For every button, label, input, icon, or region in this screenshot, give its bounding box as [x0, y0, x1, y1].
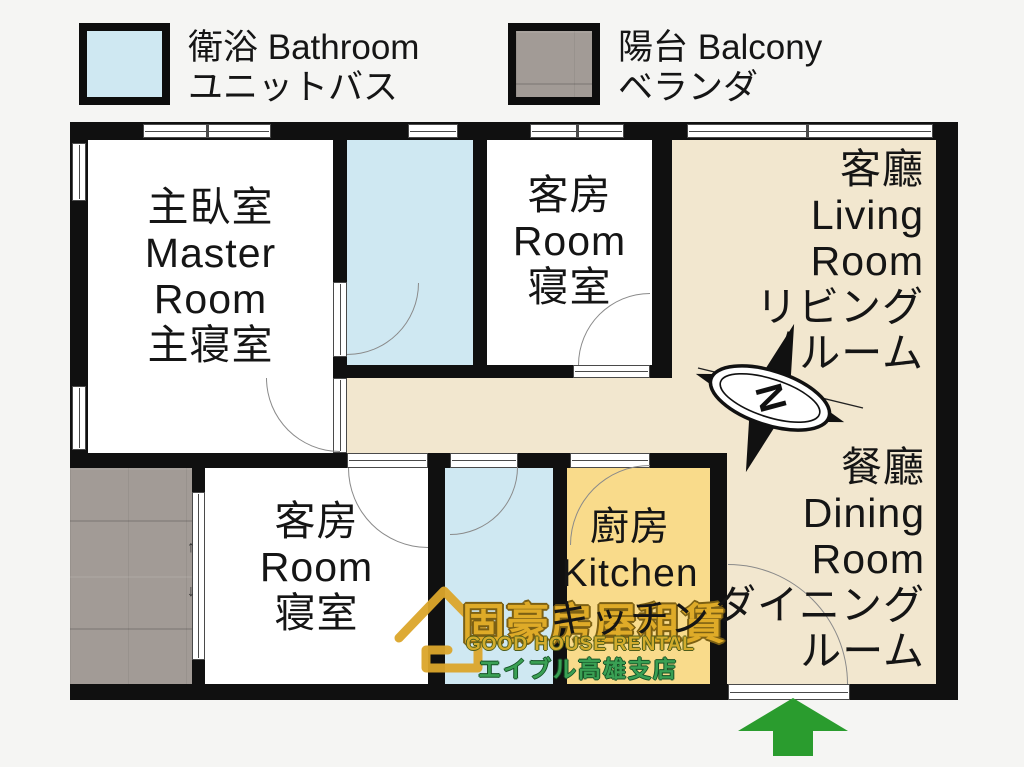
label-line: Room	[487, 218, 652, 264]
legend-balcony-swatch	[508, 23, 600, 105]
door-opening-bathroom-bottom	[450, 453, 518, 468]
label-master-bedroom: 主臥室 Master Room 主寝室	[88, 184, 333, 368]
label-line: Room	[672, 238, 924, 284]
wall-master-bath	[333, 134, 347, 282]
label-line: Kitchen	[540, 551, 720, 597]
wall-outer-right	[936, 122, 958, 700]
wall-guest-living	[652, 134, 672, 378]
door-opening-guest-top	[573, 365, 650, 378]
label-line: 客廳	[672, 146, 924, 192]
label-line: 主臥室	[88, 184, 333, 230]
legend-balcony-text: 陽台 Balcony	[618, 28, 822, 68]
wall-hall-top-left	[333, 365, 573, 378]
entrance-arrow-icon	[738, 698, 848, 756]
wall-slider-stub-bottom	[192, 660, 205, 684]
label-line: 寝室	[205, 590, 428, 636]
slider-arrow-up-icon: ↑	[187, 540, 195, 556]
legend-bathroom-swatch	[79, 23, 170, 105]
window-master-left-upper	[72, 143, 86, 201]
label-line: 主寝室	[88, 322, 333, 368]
legend-bathroom-text-jp: ユニットバス	[188, 68, 419, 108]
window-living-top	[687, 124, 933, 138]
floor-plan-page: 衛浴 Bathroom ユニットバス 陽台 Balcony ベランダ	[0, 0, 1024, 767]
balcony	[70, 468, 192, 684]
label-line: 寝室	[487, 264, 652, 310]
label-line: Room	[88, 276, 333, 322]
label-line: 客房	[487, 172, 652, 218]
window-master-top	[143, 124, 271, 138]
label-kitchen: 廚房 Kitchen キッチン	[540, 505, 720, 643]
label-line: キッチン	[540, 597, 720, 643]
wall-slider-stub-top	[192, 468, 205, 492]
sliding-door-balcony	[192, 492, 205, 660]
wall-hall-bottom-left	[70, 453, 347, 468]
legend-bathroom-label: 衛浴 Bathroom ユニットバス	[188, 28, 419, 108]
window-bathroom-top	[408, 124, 458, 138]
window-guest-top	[530, 124, 624, 138]
legend-balcony-label: 陽台 Balcony ベランダ	[618, 28, 822, 108]
label-line: 客房	[205, 498, 428, 544]
slider-arrow-down-icon: ↓	[187, 584, 195, 600]
legend-bathroom-text: 衛浴 Bathroom	[188, 28, 419, 68]
label-line: 廚房	[540, 505, 720, 551]
wall-bath-guest	[473, 134, 487, 378]
label-line: Master	[88, 230, 333, 276]
label-guest-room-bottom: 客房 Room 寝室	[205, 498, 428, 636]
label-line: Living	[672, 192, 924, 238]
window-master-left-lower	[72, 386, 86, 450]
door-opening-bathroom-top	[333, 282, 347, 357]
compass-icon: N	[688, 318, 868, 483]
hallway	[347, 378, 672, 453]
label-guest-room-top: 客房 Room 寝室	[487, 172, 652, 310]
door-opening-guest-bottom	[347, 453, 428, 468]
wall-hall-top-right	[650, 365, 672, 378]
label-line: Room	[205, 544, 428, 590]
legend-balcony-text-jp: ベランダ	[618, 68, 822, 108]
